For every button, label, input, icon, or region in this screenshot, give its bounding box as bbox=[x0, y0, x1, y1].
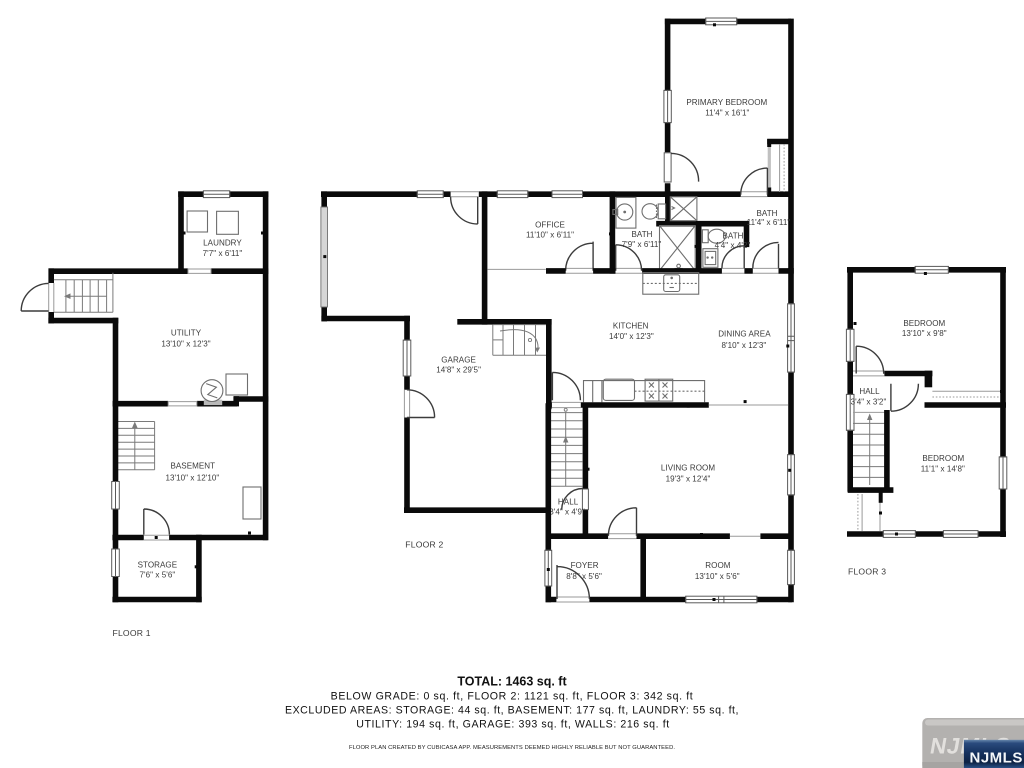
svg-text:14'8" x 29'5": 14'8" x 29'5" bbox=[436, 366, 481, 375]
svg-text:OFFICE: OFFICE bbox=[535, 220, 565, 229]
svg-text:BEDROOM: BEDROOM bbox=[903, 319, 945, 328]
svg-text:13'10" x 9'8": 13'10" x 9'8" bbox=[902, 329, 947, 338]
svg-text:19'3" x 12'4": 19'3" x 12'4" bbox=[666, 475, 711, 484]
svg-text:11'1" x 14'8": 11'1" x 14'8" bbox=[921, 465, 965, 474]
svg-text:BEDROOM: BEDROOM bbox=[922, 454, 964, 463]
svg-text:FLOOR 3: FLOOR 3 bbox=[848, 567, 886, 577]
svg-text:13'10" x 5'6": 13'10" x 5'6" bbox=[695, 572, 740, 581]
svg-text:BASEMENT: BASEMENT bbox=[170, 461, 215, 470]
svg-text:HALL: HALL bbox=[558, 497, 579, 506]
svg-text:PRIMARY BEDROOM: PRIMARY BEDROOM bbox=[686, 98, 767, 107]
svg-text:FOYER: FOYER bbox=[571, 561, 599, 570]
svg-text:BELOW GRADE: 0 sq. ft, FLOOR 2: BELOW GRADE: 0 sq. ft, FLOOR 2: 1121 sq.… bbox=[331, 690, 694, 702]
svg-text:GARAGE: GARAGE bbox=[441, 356, 476, 365]
svg-text:NJMLS: NJMLS bbox=[970, 749, 1023, 766]
svg-text:7'6" x 5'6": 7'6" x 5'6" bbox=[140, 571, 176, 580]
svg-text:ROOM: ROOM bbox=[705, 561, 730, 570]
svg-text:3'4" x 3'2": 3'4" x 3'2" bbox=[851, 397, 887, 406]
svg-text:EXCLUDED AREAS: STORAGE: 44 sq: EXCLUDED AREAS: STORAGE: 44 sq. ft, BASE… bbox=[285, 705, 739, 717]
svg-text:DINING AREA: DINING AREA bbox=[718, 330, 771, 339]
svg-text:KITCHEN: KITCHEN bbox=[613, 321, 649, 330]
svg-text:BATH: BATH bbox=[756, 209, 777, 218]
svg-text:HALL: HALL bbox=[859, 387, 880, 396]
svg-text:TOTAL: 1463 sq. ft: TOTAL: 1463 sq. ft bbox=[457, 675, 567, 689]
svg-text:13'10" x 12'10": 13'10" x 12'10" bbox=[165, 473, 219, 482]
svg-text:FLOOR 1: FLOOR 1 bbox=[113, 628, 151, 638]
svg-text:11'4" x 16'1": 11'4" x 16'1" bbox=[705, 108, 749, 117]
svg-text:UTILITY: 194 sq. ft, GARAGE: 3: UTILITY: 194 sq. ft, GARAGE: 393 sq. ft,… bbox=[356, 719, 670, 731]
svg-text:STORAGE: STORAGE bbox=[138, 560, 178, 569]
svg-text:14'0" x 12'3": 14'0" x 12'3" bbox=[609, 332, 654, 341]
svg-text:UTILITY: UTILITY bbox=[171, 328, 202, 337]
svg-text:13'10" x 12'3": 13'10" x 12'3" bbox=[161, 340, 210, 349]
svg-text:8'8" x 5'6": 8'8" x 5'6" bbox=[566, 572, 602, 581]
svg-text:FLOOR 2: FLOOR 2 bbox=[405, 539, 443, 549]
svg-text:BATH: BATH bbox=[722, 232, 743, 241]
svg-text:8'10" x 12'3": 8'10" x 12'3" bbox=[722, 341, 767, 350]
svg-text:3'4" x 4'9": 3'4" x 4'9" bbox=[549, 508, 585, 517]
svg-text:LAUNDRY: LAUNDRY bbox=[203, 239, 242, 248]
svg-text:FLOOR PLAN CREATED BY CUBICASA: FLOOR PLAN CREATED BY CUBICASA APP. MEAS… bbox=[349, 745, 675, 751]
svg-text:7'7" x 6'11": 7'7" x 6'11" bbox=[203, 249, 243, 258]
svg-text:11'4" x 6'11": 11'4" x 6'11" bbox=[747, 218, 791, 227]
svg-text:BATH: BATH bbox=[631, 230, 652, 239]
svg-text:LIVING ROOM: LIVING ROOM bbox=[661, 463, 715, 472]
svg-text:11'10" x 6'11": 11'10" x 6'11" bbox=[526, 231, 574, 240]
